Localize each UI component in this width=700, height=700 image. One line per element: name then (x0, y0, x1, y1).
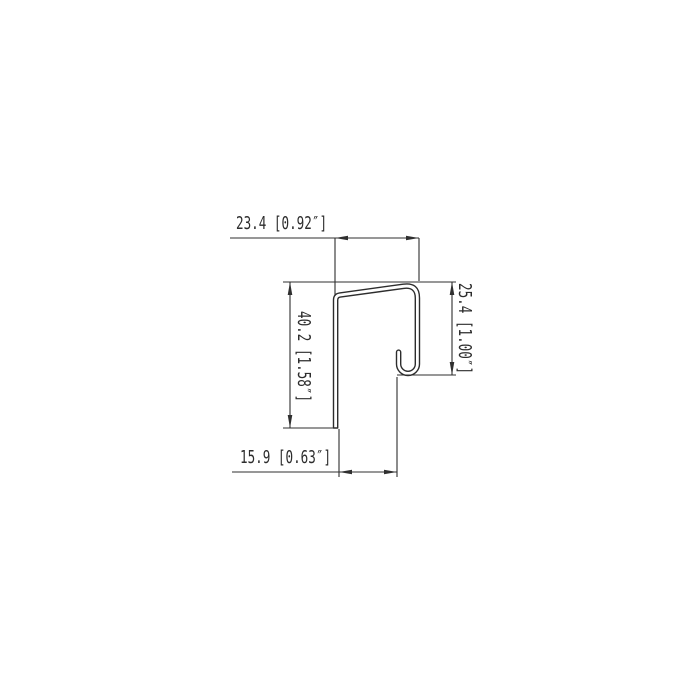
dimension-lines (230, 238, 456, 477)
arrowhead-bottom-left (339, 470, 352, 475)
arrowhead-top-left (335, 236, 348, 241)
arrowhead-bottom-right (384, 470, 397, 475)
arrowhead-left-down (288, 415, 293, 428)
arrowhead-left-up (288, 282, 293, 295)
technical-drawing-canvas: 23.4 [0.92″] 40.2 [1.58″] 25.4 [1.00″] 1… (0, 0, 700, 700)
dim-label-bottom-width: 15.9 [0.63″] (240, 448, 331, 467)
dim-label-right-height: 25.4 [1.00″] (455, 283, 474, 374)
dim-label-top-width: 23.4 [0.92″] (236, 214, 327, 233)
drawing-svg (0, 0, 700, 700)
profile-outline (334, 284, 420, 428)
arrowhead-top-right (406, 236, 419, 241)
dim-label-left-height: 40.2 [1.58″] (294, 311, 313, 402)
